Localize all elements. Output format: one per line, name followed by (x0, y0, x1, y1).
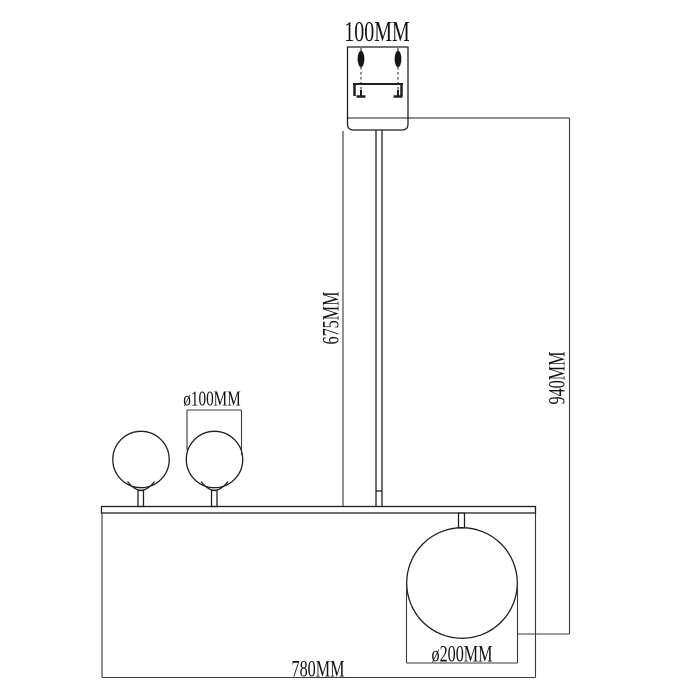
screw-head (358, 51, 365, 67)
mounting-screw-left (357, 48, 366, 97)
label-rod-length: 675MM (320, 292, 343, 345)
label-large-globe-diameter: ø200MM (431, 643, 492, 666)
horizontal-bar (102, 507, 536, 514)
small-globe-left (113, 431, 169, 506)
globe-cup (128, 482, 155, 491)
label-small-globe-diameter: ø100MM (183, 389, 240, 411)
small-globe-right (186, 431, 242, 506)
globe-sphere (186, 431, 242, 487)
label-overall-height: 940MM (546, 352, 569, 405)
large-globe (407, 513, 518, 638)
globe-sphere (113, 431, 169, 487)
label-canopy-width: 100MM (344, 18, 409, 46)
globe-stem (459, 513, 465, 528)
globe-sphere (407, 528, 518, 639)
pendant-lamp-drawing (0, 0, 700, 700)
label-fixture-width: 780MM (292, 658, 345, 681)
screw-head (395, 51, 402, 67)
canopy (348, 47, 570, 130)
globe-stem (212, 491, 218, 507)
globe-stem (138, 491, 144, 507)
globe-cup (201, 482, 228, 491)
suspension-rod (376, 130, 382, 506)
dimension-drawing-page: 100MM 675MM 940MM ø100MM ø200MM 780MM (0, 0, 700, 700)
dim-small-globe-diameter (187, 410, 242, 455)
